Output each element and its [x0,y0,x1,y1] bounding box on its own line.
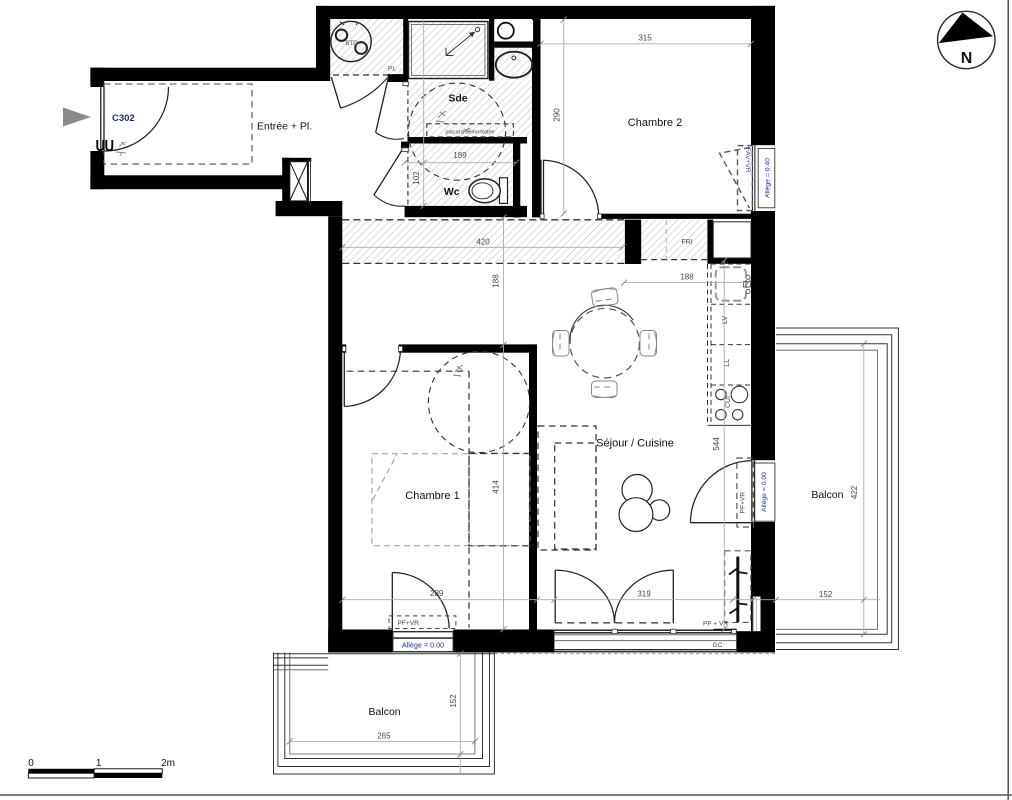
svg-text:Allège = 0.00: Allège = 0.00 [761,472,768,512]
svg-text:PF+VR: PF+VR [740,492,747,514]
svg-text:265: 265 [377,732,391,741]
svg-text:PL: PL [388,65,396,72]
svg-text:Chambre 1: Chambre 1 [405,490,459,502]
svg-text:Wc: Wc [444,186,460,198]
svg-text:414: 414 [492,480,501,494]
svg-text:2m: 2m [161,758,175,769]
svg-text:LV: LV [722,316,729,324]
svg-text:Balcon: Balcon [369,706,401,718]
svg-text:Séjour / Cuisine: Séjour / Cuisine [596,437,674,449]
svg-text:188: 188 [492,274,501,288]
svg-text:188: 188 [680,273,694,282]
svg-text:422: 422 [850,485,859,499]
svg-text:319: 319 [637,590,651,599]
svg-text:290: 290 [553,108,562,122]
svg-text:PF+VR: PF+VR [398,620,420,627]
svg-text:0: 0 [28,758,34,769]
svg-text:FRI: FRI [681,239,692,246]
svg-text:544: 544 [712,437,721,451]
svg-text:Balcon: Balcon [811,489,843,501]
svg-text:CUI: CUI [725,396,732,408]
svg-text:Sde: Sde [448,93,467,105]
svg-text:152: 152 [819,590,833,599]
svg-text:102: 102 [412,171,421,185]
svg-text:C302: C302 [112,113,135,124]
svg-text:315: 315 [638,34,652,43]
svg-text:189: 189 [453,151,467,160]
svg-text:1: 1 [96,758,102,769]
svg-text:Allège = 0.40: Allège = 0.40 [765,158,772,198]
svg-text:Allège = 0.00: Allège = 0.00 [402,640,444,649]
svg-text:BTD: BTD [345,40,358,47]
svg-text:Entrée + Pl.: Entrée + Pl. [257,121,312,133]
svg-text:289: 289 [430,589,444,598]
svg-text:LL: LL [724,359,731,367]
svg-text:placard démontable: placard démontable [445,130,494,136]
svg-text:N: N [961,50,973,67]
svg-text:152: 152 [449,694,458,708]
svg-text:Chambre 2: Chambre 2 [628,117,682,129]
svg-text:FAV+VR: FAV+VR [744,148,751,173]
svg-text:420: 420 [476,237,490,246]
svg-text:GC: GC [713,642,723,649]
